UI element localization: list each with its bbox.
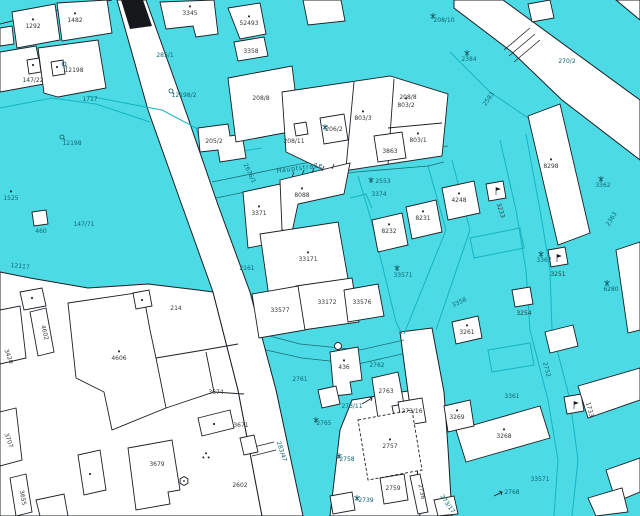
house-dot-icon xyxy=(10,191,12,193)
parcel-label: 2763 xyxy=(378,388,393,395)
building xyxy=(20,288,46,310)
parcel-label: 2761 xyxy=(292,376,307,383)
parcel-label: 1717 xyxy=(82,96,97,103)
house-dot-icon xyxy=(466,325,468,327)
building xyxy=(32,210,48,226)
parcel-label: 208/11 xyxy=(283,138,304,145)
parcel-label: 208/8 xyxy=(399,94,416,101)
parcel-label: 2758 xyxy=(339,456,354,463)
parcel-label: 3674 xyxy=(208,389,223,396)
house-dot-icon xyxy=(141,299,143,301)
parcel-label: 6280 xyxy=(603,286,618,293)
house-dot-icon xyxy=(307,252,309,254)
parcel-label: 2757 xyxy=(382,443,397,450)
parcel-label: 3269 xyxy=(449,414,464,421)
building xyxy=(528,0,554,22)
parcel-label: 214 xyxy=(170,305,182,312)
parcel-label: 33171 xyxy=(298,256,317,263)
parcel-label: 33172 xyxy=(317,299,336,306)
parcel-label: 33576 xyxy=(352,299,371,306)
parcel-label: 208/10 xyxy=(433,17,454,24)
parcel-label: 3374 xyxy=(371,191,386,198)
house-dot-icon xyxy=(362,111,364,113)
parcel-label: 1482 xyxy=(67,17,82,24)
parcel-label: 8298 xyxy=(543,163,558,170)
building-round-annex xyxy=(335,343,342,350)
house-dot-icon xyxy=(388,224,390,226)
parcel-label: 273/16 xyxy=(401,408,422,415)
parcel-label: 3345 xyxy=(182,10,197,17)
parcel-label: 4606 xyxy=(111,355,126,362)
parcel-label: 8088 xyxy=(294,192,309,199)
parcel-label: 3671 xyxy=(233,422,248,429)
parcel-label: 460 xyxy=(35,228,47,235)
parcel-label: 33571 xyxy=(530,476,549,483)
house-dot-icon xyxy=(503,429,505,431)
parcel-label: 2739 xyxy=(358,497,373,504)
map-canvas[interactable]: 1292148212198147/223345524933358208/8208… xyxy=(0,0,640,516)
parcel-label: 3261 xyxy=(459,329,474,336)
house-dot-icon xyxy=(31,297,33,299)
house-dot-icon xyxy=(248,16,250,18)
parcel-label: 2768 xyxy=(504,489,519,496)
house-dot-icon xyxy=(32,64,34,66)
parcel-label: 3361 xyxy=(504,393,519,400)
map-viewport[interactable]: 1292148212198147/223345524933358208/8208… xyxy=(0,0,640,516)
house-dot-icon xyxy=(458,193,460,195)
parcel-label: 3371 xyxy=(251,210,266,217)
parcel-label: 3254 xyxy=(516,310,531,317)
parcel-label: 1525 xyxy=(3,195,18,202)
parcel-label: 2161 xyxy=(239,265,254,272)
parcel-label: 803/2 xyxy=(397,102,414,109)
building xyxy=(303,0,345,25)
building xyxy=(294,122,308,136)
parcel-label: 2602 xyxy=(232,482,247,489)
parcel-label: 4248 xyxy=(451,197,466,204)
parcel-label: 147/71 xyxy=(73,221,94,228)
building xyxy=(27,58,41,74)
parcel-label: 3679 xyxy=(149,461,164,468)
parcel-label: 206/2 xyxy=(325,126,342,133)
house-dot-icon xyxy=(118,351,120,353)
parcel-label: 3251 xyxy=(550,271,565,278)
building xyxy=(318,386,340,408)
parcel-label: 2762 xyxy=(369,362,384,369)
house-dot-icon xyxy=(422,211,424,213)
building xyxy=(374,132,406,162)
parcel-label: 285/1 xyxy=(156,52,173,59)
parcel-label: 1292 xyxy=(25,23,40,30)
parcel-label: 208/8 xyxy=(252,95,269,102)
parcel-label: 12198 xyxy=(64,67,83,74)
parcel-label: 3863 xyxy=(382,148,397,155)
house-dot-icon xyxy=(189,6,191,8)
parcel-label: 3268 xyxy=(496,433,511,440)
house-dot-icon xyxy=(213,423,215,425)
house-dot-icon xyxy=(56,66,58,68)
parcel-label: 12198 xyxy=(62,140,81,147)
house-dot-icon xyxy=(417,133,419,135)
parcel-label: 33577 xyxy=(270,307,289,314)
parcel-label: 33571 xyxy=(393,272,412,279)
parcel-label: 3367 xyxy=(536,257,551,264)
parcel-label: 147/22 xyxy=(22,77,43,84)
parcel-label: 8232 xyxy=(381,228,396,235)
parcel-label: 3358 xyxy=(243,48,258,55)
parcel-label: 803/3 xyxy=(354,115,371,122)
parcel-label: 2553 xyxy=(375,178,390,185)
house-dot-icon xyxy=(456,410,458,412)
parcel-label: 273/11 xyxy=(341,403,362,410)
building xyxy=(0,26,14,46)
house-dot-icon xyxy=(32,19,34,21)
house-dot-icon xyxy=(258,206,260,208)
parcel-label: 2384 xyxy=(461,56,476,63)
house-dot-icon xyxy=(301,188,303,190)
parcel-label: 2765 xyxy=(316,420,331,427)
parcel-label: 52493 xyxy=(239,20,258,27)
parcel-label: 803/1 xyxy=(409,137,426,144)
parcel-label: 12198/2 xyxy=(172,92,197,99)
parcel-label: 436 xyxy=(338,364,350,371)
house-dot-icon xyxy=(343,360,345,362)
house-dot-icon xyxy=(74,13,76,15)
parcel-label: 205/2 xyxy=(205,138,222,145)
house-dot-icon xyxy=(389,439,391,441)
parcel-label: 3362 xyxy=(595,182,610,189)
parcel-label: 270/2 xyxy=(558,58,575,65)
well-icon xyxy=(180,477,188,486)
building xyxy=(330,492,355,514)
house-dot-icon xyxy=(405,98,407,100)
building xyxy=(512,287,533,307)
parcel-label: 2759 xyxy=(385,485,400,492)
house-dot-icon xyxy=(550,159,552,161)
house-dot-icon xyxy=(89,473,91,475)
parcel-label: 8231 xyxy=(415,215,430,222)
